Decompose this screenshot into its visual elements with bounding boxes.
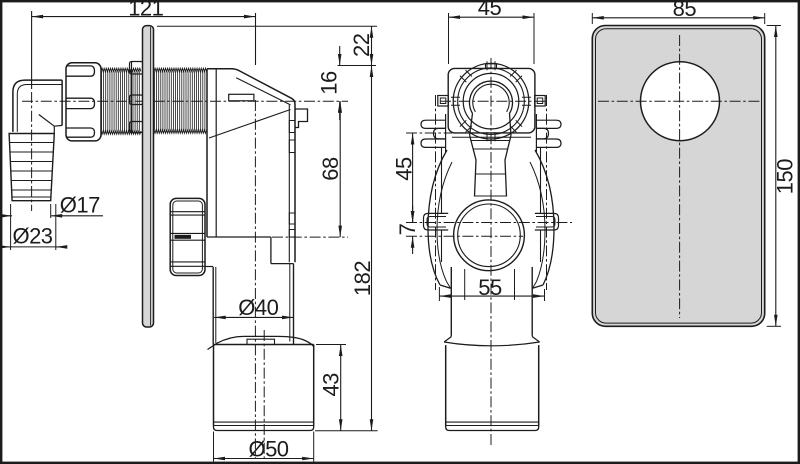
svg-text:85: 85 bbox=[673, 0, 697, 21]
svg-text:55: 55 bbox=[478, 275, 502, 300]
svg-text:182: 182 bbox=[350, 261, 375, 296]
svg-text:7: 7 bbox=[395, 223, 420, 235]
svg-text:Ø40: Ø40 bbox=[238, 295, 278, 320]
svg-text:22: 22 bbox=[349, 33, 374, 57]
svg-text:68: 68 bbox=[318, 157, 343, 181]
svg-text:45: 45 bbox=[392, 157, 417, 181]
svg-text:Ø23: Ø23 bbox=[12, 224, 52, 249]
svg-text:Ø17: Ø17 bbox=[60, 193, 100, 218]
svg-text:Ø50: Ø50 bbox=[248, 437, 288, 462]
svg-text:45: 45 bbox=[478, 0, 502, 20]
svg-text:16: 16 bbox=[316, 71, 341, 95]
svg-text:121: 121 bbox=[128, 0, 163, 20]
svg-text:43: 43 bbox=[319, 373, 344, 397]
svg-text:150: 150 bbox=[773, 159, 798, 194]
